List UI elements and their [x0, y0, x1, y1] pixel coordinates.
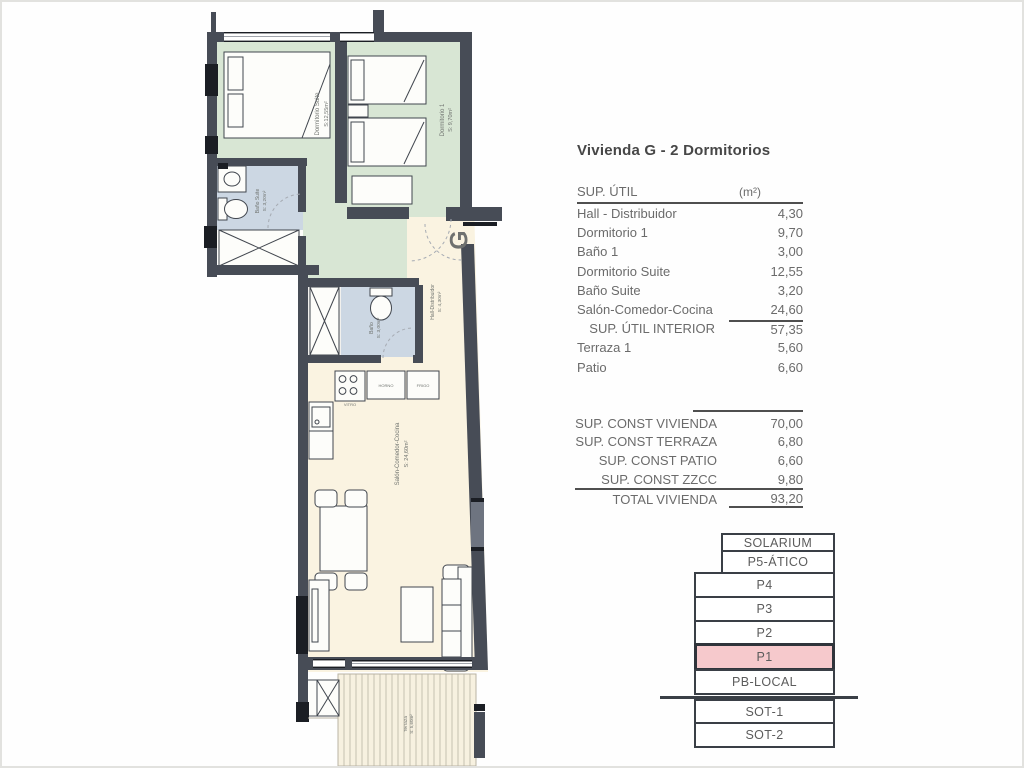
area-bano: S: 3,00m²: [376, 317, 382, 338]
row-label: Dormitorio Suite: [577, 264, 729, 279]
floor-sot-1: SOT-1: [694, 699, 835, 724]
row-label: SUP. ÚTIL INTERIOR: [577, 321, 729, 336]
row-label: SUP. CONST ZZCC: [575, 472, 729, 487]
floor-pb-local: PB-LOCAL: [694, 669, 835, 695]
wardrobe: [219, 230, 299, 266]
table-row: Hall - Distribuidor4,30: [577, 204, 803, 223]
appliance-label-1: HORNO: [379, 383, 394, 388]
label-dormitorio-1: Dormitorio 1: [440, 103, 446, 136]
row-value: 9,80: [729, 472, 803, 487]
table-row-subtotal: SUP. ÚTIL INTERIOR57,35: [577, 319, 803, 338]
page-title: Vivienda G - 2 Dormitorios: [577, 142, 770, 159]
row-value: 6,60: [729, 453, 803, 468]
table-row-total: TOTAL VIVIENDA93,20: [575, 488, 803, 509]
row-label: SUP. CONST PATIO: [575, 453, 729, 468]
row-value: 9,70: [729, 225, 803, 240]
single-bed-1: [348, 56, 426, 104]
row-label: Dormitorio 1: [577, 225, 729, 240]
table-row: Dormitorio Suite12,55: [577, 262, 803, 281]
mid-green-fill: [307, 214, 407, 280]
table-top-rule: [693, 410, 803, 412]
row-value: 70,00: [729, 416, 803, 431]
area-hall: S: 4,30m²: [437, 291, 443, 312]
row-value: 6,80: [729, 434, 803, 449]
row-label: Patio: [577, 360, 729, 375]
area-dormitorio-1: S: 9,70m²: [448, 108, 454, 132]
unit-letter: G: [446, 231, 473, 250]
nightstand: [348, 105, 368, 117]
label-bano-suite: Baño Suite: [255, 189, 261, 214]
coffee-table: [401, 587, 433, 642]
floor-p3: P3: [694, 596, 835, 622]
dresser: [352, 176, 412, 204]
appliance-label-3: VITRO: [344, 402, 356, 407]
row-value: 3,20: [729, 283, 803, 298]
label-dormitorio-suite: Dormitorio Suite: [315, 92, 321, 136]
table-row: SUP. CONST TERRAZA6,80: [575, 433, 803, 452]
floor-sot-2: SOT-2: [694, 722, 835, 748]
sup-util-header: SUP. ÚTIL (m²): [577, 183, 803, 204]
area-terraza: S: 5,60m²: [409, 714, 414, 734]
window-suite: [224, 32, 330, 42]
floor-p4: P4: [694, 572, 835, 598]
floor-plan: HORNO FRIGO VITRO: [197, 2, 512, 768]
row-label: SUP. CONST TERRAZA: [575, 434, 729, 449]
label-salon: Salón-Comedor-Cocina: [395, 422, 401, 485]
window-dorm1: [340, 32, 374, 42]
bano-toilet: [370, 288, 392, 320]
row-label: TOTAL VIVIENDA: [575, 492, 729, 507]
sup-const-table: SUP. CONST VIVIENDA70,00 SUP. CONST TERR…: [575, 410, 803, 509]
row-label: Hall - Distribuidor: [577, 206, 729, 221]
appliance-label-2: FRIGO: [417, 383, 430, 388]
row-label: Terraza 1: [577, 340, 729, 355]
floor-p1-highlighted: P1: [694, 643, 835, 671]
area-dormitorio-suite: S:12,55m²: [324, 101, 330, 127]
row-value: 24,60: [729, 302, 803, 317]
row-label: SUP. CONST VIVIENDA: [575, 416, 729, 431]
area-bano-suite: S: 3,20m²: [262, 190, 268, 211]
table-row: Baño 13,00: [577, 242, 803, 261]
row-value: 3,00: [729, 244, 803, 259]
header-unit: (m²): [739, 185, 761, 199]
table-row: Dormitorio 19,70: [577, 223, 803, 242]
row-label: Baño Suite: [577, 283, 729, 298]
label-hall: Hall-Distribuidor: [430, 284, 436, 320]
table-row: Patio6,60: [577, 358, 803, 377]
sup-util-table: SUP. ÚTIL (m²) Hall - Distribuidor4,30 D…: [577, 183, 803, 377]
terrace-ac-box: [307, 680, 339, 716]
patio-door: [313, 659, 345, 668]
table-row: SUP. CONST VIVIENDA70,00: [575, 414, 803, 433]
table-row: Salón-Comedor-Cocina24,60: [577, 300, 803, 319]
single-bed-2: [348, 118, 426, 166]
row-label: Baño 1: [577, 244, 729, 259]
table-row: Terraza 15,60: [577, 338, 803, 357]
table-row: SUP. CONST ZZCC9,80: [575, 470, 803, 489]
row-value: 6,60: [729, 360, 803, 375]
tv-unit: [309, 580, 329, 651]
header-label: SUP. ÚTIL: [577, 184, 637, 199]
floor-p5-atico: P5-ÁTICO: [721, 550, 835, 574]
table-row: SUP. CONST PATIO6,60: [575, 451, 803, 470]
sliding-door: [352, 660, 472, 668]
row-value: 57,35: [729, 320, 803, 337]
closet: [310, 287, 339, 355]
floor-p2: P2: [694, 620, 835, 645]
row-label: Salón-Comedor-Cocina: [577, 302, 729, 317]
row-value: 93,20: [729, 491, 803, 508]
area-salon: S: 24,60m²: [404, 440, 410, 467]
label-bano: Baño: [369, 322, 375, 334]
row-value: 4,30: [729, 206, 803, 221]
row-value: 12,55: [729, 264, 803, 279]
row-value: 5,60: [729, 340, 803, 355]
page: HORNO FRIGO VITRO: [0, 0, 1024, 768]
table-row: Baño Suite3,20: [577, 281, 803, 300]
sofa: [442, 565, 472, 671]
